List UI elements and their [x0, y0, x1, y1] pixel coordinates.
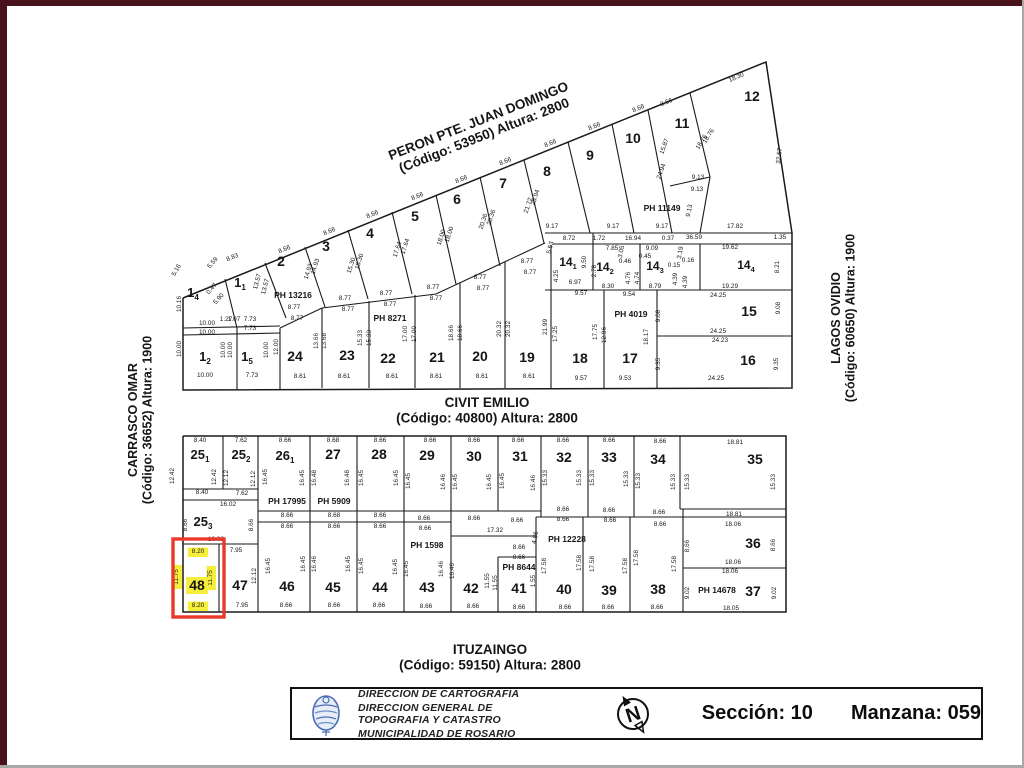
svg-text:19: 19: [519, 349, 535, 365]
dimension-label: 5.59: [206, 256, 220, 270]
dimension-label: 24.94: [656, 162, 668, 180]
dimension-label: 8.77: [291, 315, 304, 322]
ph-parcel-label: PH 12228: [548, 534, 586, 544]
dimension-label: 12.12: [251, 568, 258, 584]
lot-number-label: 18: [572, 350, 588, 366]
svg-text:28: 28: [371, 446, 387, 462]
lot-number-label: 17: [622, 350, 638, 366]
dimension-label: 16.45: [358, 558, 365, 574]
lot-number-label: 141: [559, 255, 577, 271]
svg-text:15.33: 15.33: [635, 473, 642, 489]
svg-text:8.61: 8.61: [386, 373, 399, 380]
lot-number-label: 23: [339, 347, 355, 363]
dimension-label: 32.57: [775, 147, 784, 164]
footer-line-1: DIRECCION DE CARTOGRAFIA: [358, 688, 540, 700]
svg-text:16.02: 16.02: [220, 501, 236, 508]
svg-text:4.25: 4.25: [553, 269, 560, 282]
dimension-label: 16.45: [392, 559, 399, 575]
svg-text:17.00: 17.00: [402, 326, 409, 342]
svg-text:7.85: 7.85: [606, 245, 619, 252]
dimension-label: 12.12: [223, 470, 230, 486]
svg-text:2: 2: [277, 253, 285, 269]
street-civit: CIVIT EMILIO(Código: 40800) Altura: 2800: [396, 395, 578, 426]
dimension-label: 8.66: [374, 512, 387, 519]
dimension-label: 8.66: [182, 518, 189, 531]
svg-text:7.73: 7.73: [244, 316, 257, 323]
svg-text:9.13: 9.13: [691, 186, 704, 193]
dimension-label: 12.42: [169, 468, 176, 484]
svg-text:0.46: 0.46: [619, 258, 632, 265]
svg-text:9.13: 9.13: [685, 203, 695, 217]
svg-text:17.75: 17.75: [592, 324, 599, 340]
ph-parcel-label: PH 17995: [268, 496, 306, 506]
dimension-label: 0.16: [682, 257, 695, 264]
svg-text:15.33: 15.33: [623, 471, 630, 487]
svg-text:11.55: 11.55: [492, 575, 499, 591]
svg-text:16.94: 16.94: [625, 235, 641, 242]
svg-text:4: 4: [366, 225, 374, 241]
svg-text:18.30: 18.30: [728, 71, 746, 84]
dimension-label: 8.77: [430, 295, 443, 302]
dimension-label: 18.06: [725, 521, 741, 528]
svg-text:17.32: 17.32: [487, 527, 503, 534]
section-label: Sección: 10: [702, 702, 813, 725]
svg-text:16.45: 16.45: [262, 469, 269, 485]
dimension-label: 7.85: [606, 245, 619, 252]
dimension-label: 8.66: [279, 437, 292, 444]
svg-text:8.61: 8.61: [338, 373, 351, 380]
ph-parcel-label: PH 14678: [698, 585, 736, 595]
svg-text:6.97: 6.97: [569, 279, 582, 286]
svg-text:20.32: 20.32: [496, 321, 503, 337]
dimension-label: 8.66: [418, 515, 431, 522]
dimension-label: 4.25: [553, 269, 560, 282]
dimension-label: 8.20: [188, 548, 208, 557]
dimension-label: 8.77: [521, 258, 534, 265]
svg-text:20: 20: [472, 348, 488, 364]
dimension-label: 8.66: [631, 103, 646, 114]
svg-text:8.79: 8.79: [649, 283, 662, 290]
lot-number-label: 253: [194, 514, 213, 531]
svg-text:16.45: 16.45: [345, 556, 352, 572]
svg-text:PH 12228: PH 12228: [548, 534, 586, 544]
svg-text:4.86: 4.86: [531, 531, 540, 545]
svg-text:8.66: 8.66: [659, 97, 674, 108]
lot-number-label: 30: [466, 448, 482, 464]
footer-org-lines: DIRECCION DE CARTOGRAFIA DIRECCION GENER…: [358, 688, 540, 740]
dimension-label: 16.45: [358, 470, 365, 486]
svg-text:8.68: 8.68: [328, 512, 341, 519]
svg-text:15.87: 15.87: [659, 137, 671, 155]
svg-text:16.45: 16.45: [486, 474, 493, 490]
dimension-label: 16.46: [438, 561, 445, 577]
dimension-label: 16.48: [311, 470, 318, 486]
svg-text:8.66: 8.66: [281, 523, 294, 530]
dimension-label: 17.32: [487, 527, 503, 534]
svg-text:16.45: 16.45: [392, 559, 399, 575]
dimension-label: 8.77: [288, 304, 301, 311]
svg-text:8.66: 8.66: [279, 437, 292, 444]
svg-text:8.66: 8.66: [557, 516, 570, 523]
svg-text:12.42: 12.42: [211, 469, 218, 485]
svg-text:8.66: 8.66: [587, 121, 602, 132]
lot-number-label: 11: [234, 275, 246, 292]
dimension-label: 9.54: [623, 291, 636, 298]
svg-text:13.66: 13.66: [313, 333, 320, 349]
svg-text:10.00: 10.00: [227, 342, 234, 358]
svg-text:8.77: 8.77: [291, 315, 304, 322]
dimension-label: 18.66: [457, 325, 464, 341]
dimension-label: 17.82: [727, 223, 743, 230]
svg-text:141: 141: [559, 255, 577, 271]
lot-number-label: 39: [601, 582, 617, 598]
dimension-label: 8.21: [774, 260, 781, 273]
svg-text:15.33: 15.33: [357, 330, 364, 346]
dimension-label: 7.73: [246, 372, 259, 379]
svg-text:16.48: 16.48: [344, 470, 351, 486]
svg-text:11.55: 11.55: [484, 573, 491, 589]
svg-text:18.66: 18.66: [457, 325, 464, 341]
dimension-label: 11.75: [207, 566, 216, 590]
svg-text:8.66: 8.66: [248, 518, 255, 531]
svg-text:32.57: 32.57: [775, 147, 784, 164]
svg-text:8.68: 8.68: [327, 437, 340, 444]
dimension-label: 15.33: [770, 474, 777, 490]
svg-text:PH 17995: PH 17995: [268, 496, 306, 506]
svg-text:CIVIT EMILIO(Código: 40800) Al: CIVIT EMILIO(Código: 40800) Altura: 2800: [396, 395, 578, 426]
svg-text:14.93: 14.93: [310, 257, 322, 275]
svg-text:34: 34: [650, 451, 666, 467]
svg-text:27: 27: [325, 446, 341, 462]
svg-text:1.55: 1.55: [530, 574, 537, 587]
svg-text:4.39: 4.39: [682, 275, 689, 288]
svg-text:17.64: 17.64: [400, 237, 412, 255]
dimension-label: 15.33: [589, 470, 596, 486]
dimension-label: 1.55: [530, 574, 537, 587]
svg-text:8.66: 8.66: [513, 554, 526, 561]
svg-text:8.66: 8.66: [281, 512, 294, 519]
dimension-label: 18.81: [726, 511, 742, 518]
lot-number-label: 31: [512, 448, 528, 464]
lot-number-label: 44: [372, 579, 388, 595]
dimension-label: 9.09: [646, 245, 659, 252]
dimension-label: 8.61: [294, 373, 307, 380]
svg-text:9.57: 9.57: [575, 290, 588, 297]
dimension-label: 8.66: [511, 517, 524, 524]
parcel-boundary-line: [183, 326, 280, 328]
svg-text:8.66: 8.66: [602, 604, 615, 611]
svg-text:8.66: 8.66: [280, 602, 293, 609]
dimension-label: 16.45: [299, 470, 306, 486]
svg-text:5.90: 5.90: [212, 292, 226, 306]
dimension-label: 8.66: [603, 437, 616, 444]
svg-text:8.61: 8.61: [294, 373, 307, 380]
svg-text:8.66: 8.66: [374, 512, 387, 519]
dimension-label: 8.72: [563, 235, 576, 242]
svg-text:9: 9: [586, 147, 594, 163]
dimension-label: 7.95: [230, 547, 243, 554]
dimension-label: 16.45: [262, 469, 269, 485]
footer-line-3: MUNICIPALIDAD DE ROSARIO: [358, 728, 540, 740]
svg-text:8.77: 8.77: [384, 301, 397, 308]
dimension-label: 9.17: [656, 223, 669, 230]
lot-number-label: 16: [740, 352, 756, 368]
svg-text:16.46: 16.46: [438, 561, 445, 577]
dimension-label: 5.90: [212, 292, 226, 306]
svg-text:17.58: 17.58: [576, 555, 583, 571]
dimension-label: 9.13: [691, 186, 704, 193]
dimension-label: 10.00: [199, 329, 215, 336]
svg-text:9.54: 9.54: [623, 291, 636, 298]
lot-number-label: 27: [325, 446, 341, 462]
dimension-label: 16.02: [220, 501, 236, 508]
svg-text:16.45: 16.45: [405, 473, 412, 489]
parcel-boundary-line: [183, 333, 280, 335]
svg-text:8.66: 8.66: [654, 438, 667, 445]
svg-text:9.35: 9.35: [773, 357, 780, 370]
dimension-label: 8.79: [649, 283, 662, 290]
svg-text:9.53: 9.53: [619, 375, 632, 382]
dimension-label: 8.66: [602, 604, 615, 611]
svg-text:16.46: 16.46: [440, 474, 447, 490]
dimension-label: 8.77: [474, 274, 487, 281]
dimension-label: 8.66: [513, 554, 526, 561]
svg-text:8.66: 8.66: [511, 517, 524, 524]
dimension-label: 15.33: [623, 471, 630, 487]
dimension-label: 8.40: [196, 489, 209, 496]
lot-number-label: 21: [429, 349, 445, 365]
dimension-label: 15.33: [684, 474, 691, 490]
dimension-label: 16.46: [440, 474, 447, 490]
dimension-label: 17.64: [400, 237, 412, 255]
svg-text:5.16: 5.16: [171, 263, 184, 278]
dimension-label: 9.57: [575, 375, 588, 382]
dimension-label: 17.58: [589, 556, 596, 572]
svg-text:12.00: 12.00: [273, 339, 280, 355]
lot-number-label: 2: [277, 253, 285, 269]
svg-text:13.68: 13.68: [321, 333, 328, 349]
svg-text:1.07: 1.07: [228, 316, 241, 323]
dimension-label: 16.45: [265, 558, 272, 574]
svg-text:15.33: 15.33: [576, 470, 583, 486]
dimension-label: 9.08: [655, 309, 662, 322]
dimension-label: 16.45: [403, 561, 410, 577]
svg-text:10.00: 10.00: [199, 329, 215, 336]
svg-text:8.66: 8.66: [328, 602, 341, 609]
svg-text:8.66: 8.66: [631, 103, 646, 114]
svg-text:17.25: 17.25: [552, 326, 559, 342]
lot-number-label: 10: [625, 130, 641, 146]
dimension-label: 12.96: [601, 327, 608, 343]
svg-text:8.66: 8.66: [424, 437, 437, 444]
svg-text:18.06: 18.06: [725, 521, 741, 528]
svg-text:16.45: 16.45: [358, 558, 365, 574]
dimension-label: 12.00: [273, 339, 280, 355]
svg-text:3.05: 3.05: [617, 245, 626, 259]
dimension-label: 8.66: [603, 507, 616, 514]
dimension-label: 10.00: [220, 342, 227, 358]
svg-text:40: 40: [556, 581, 572, 597]
dimension-label: 8.66: [419, 525, 432, 532]
dimension-label: 13.66: [313, 333, 320, 349]
svg-text:42: 42: [463, 580, 479, 596]
dimension-label: 15.33: [670, 474, 677, 490]
svg-text:142: 142: [596, 260, 614, 276]
dimension-label: 8.83: [225, 252, 240, 263]
svg-text:7.95: 7.95: [236, 602, 249, 609]
svg-text:9.02: 9.02: [684, 586, 691, 599]
svg-text:1.72: 1.72: [593, 235, 606, 242]
dimension-label: 18.05: [723, 605, 739, 612]
ph-parcel-label: PH 4019: [614, 309, 647, 319]
svg-text:8.66: 8.66: [420, 603, 433, 610]
svg-text:18: 18: [572, 350, 588, 366]
dimension-label: 18.06: [722, 568, 738, 575]
lot-number-label: 35: [747, 451, 763, 467]
svg-text:8.61: 8.61: [476, 373, 489, 380]
svg-text:8.66: 8.66: [513, 544, 526, 551]
lot-number-label: 5: [411, 208, 419, 224]
svg-text:8.61: 8.61: [523, 373, 536, 380]
dimension-label: 7.73: [244, 316, 257, 323]
svg-text:9.08: 9.08: [775, 301, 782, 314]
dimension-label: 4.39: [672, 272, 679, 285]
cadastral-map-page: 5.1610.165.590.475.901.271.078.838.668.6…: [0, 0, 1024, 768]
svg-text:8.66: 8.66: [328, 523, 341, 530]
dimension-label: 11.55: [484, 573, 491, 589]
svg-text:8.66: 8.66: [322, 226, 337, 237]
dimension-label: 15.33: [576, 470, 583, 486]
dimension-label: 8.61: [523, 373, 536, 380]
svg-text:8.72: 8.72: [563, 235, 576, 242]
dimension-label: 8.68: [327, 437, 340, 444]
dimension-label: 16.46: [530, 475, 537, 491]
municipal-emblem-logo: [308, 691, 344, 737]
dimension-label: 21.99: [542, 319, 549, 335]
svg-text:7.73: 7.73: [244, 325, 257, 332]
svg-text:13.57: 13.57: [260, 278, 271, 296]
dimension-label: 8.68: [328, 512, 341, 519]
dimension-label: 8.66: [424, 437, 437, 444]
dimension-label: 17.58: [622, 558, 629, 574]
north-arrow-icon: N: [610, 691, 656, 737]
dimension-label: 19.29: [722, 283, 738, 290]
lot-number-label: 12: [199, 349, 211, 366]
svg-text:12.12: 12.12: [251, 568, 258, 584]
svg-text:8.20: 8.20: [192, 602, 205, 609]
svg-text:36: 36: [745, 535, 761, 551]
svg-text:19.29: 19.29: [722, 283, 738, 290]
ph-parcel-label: PH 8271: [373, 313, 406, 323]
dimension-label: 0.46: [619, 258, 632, 265]
dimension-label: 8.66: [280, 602, 293, 609]
dimension-label: 8.30: [602, 283, 615, 290]
svg-text:16.45: 16.45: [300, 556, 307, 572]
dimension-label: 8.61: [430, 373, 443, 380]
svg-text:0.37: 0.37: [662, 235, 675, 242]
dimension-label: 13.68: [321, 333, 328, 349]
dimension-label: 20.32: [496, 321, 503, 337]
svg-text:17.58: 17.58: [633, 550, 640, 566]
dimension-label: 12.42: [211, 469, 218, 485]
svg-text:PH 13216: PH 13216: [274, 290, 312, 300]
lot-number-label: 32: [556, 449, 572, 465]
lot-number-label: 142: [596, 260, 614, 276]
svg-text:47: 47: [232, 577, 248, 593]
dimension-label: 18.30: [728, 71, 746, 84]
dimension-label: 1.72: [593, 235, 606, 242]
svg-text:8.66: 8.66: [770, 538, 777, 551]
svg-text:251: 251: [191, 447, 210, 464]
dimension-label: 8.40: [194, 437, 207, 444]
svg-text:30: 30: [466, 448, 482, 464]
ph-parcel-label: PH 13216: [274, 290, 312, 300]
svg-text:8.77: 8.77: [430, 295, 443, 302]
dimension-label: 17.58: [671, 556, 678, 572]
lot-number-label: 45: [325, 579, 341, 595]
svg-text:16.46: 16.46: [311, 556, 318, 572]
svg-text:8.77: 8.77: [380, 290, 393, 297]
svg-text:29: 29: [419, 447, 435, 463]
dimension-label: 17.25: [552, 326, 559, 342]
svg-text:8.77: 8.77: [474, 274, 487, 281]
svg-text:24.94: 24.94: [656, 162, 668, 180]
dimension-label: 0.15: [668, 262, 681, 269]
svg-text:8.83: 8.83: [225, 252, 240, 263]
svg-text:35: 35: [747, 451, 763, 467]
dimension-label: 9.50: [581, 255, 588, 268]
dimension-label: 8.66: [557, 516, 570, 523]
dimension-label: 8.66: [684, 539, 691, 552]
svg-text:18.00: 18.00: [444, 225, 456, 243]
dimension-label: 20.32: [505, 321, 512, 337]
dimension-label: 15.33: [635, 473, 642, 489]
svg-text:8.66: 8.66: [418, 515, 431, 522]
lot-number-label: 261: [276, 448, 295, 465]
dimension-label: 16.45: [486, 474, 493, 490]
dimension-label: 8.66: [559, 604, 572, 611]
svg-text:16.46: 16.46: [530, 475, 537, 491]
svg-text:8.77: 8.77: [521, 258, 534, 265]
svg-text:7.62: 7.62: [235, 437, 248, 444]
svg-text:18.05: 18.05: [723, 605, 739, 612]
dimension-label: 8.66: [374, 523, 387, 530]
svg-text:9.17: 9.17: [656, 223, 669, 230]
lot-number-label: 8: [543, 163, 551, 179]
svg-text:0.16: 0.16: [682, 257, 695, 264]
svg-text:PH 11149: PH 11149: [644, 203, 681, 213]
dimension-label: 8.66: [654, 438, 667, 445]
lot-number-label: 4: [366, 225, 374, 241]
svg-text:16.45: 16.45: [452, 474, 459, 490]
svg-text:43: 43: [419, 579, 435, 595]
svg-text:18.17: 18.17: [643, 329, 650, 345]
svg-text:8.66: 8.66: [651, 604, 664, 611]
svg-text:7.95: 7.95: [230, 547, 243, 554]
svg-text:48: 48: [189, 577, 205, 593]
dimension-label: 17.00: [411, 326, 418, 342]
svg-text:8.66: 8.66: [467, 603, 480, 610]
svg-text:9.57: 9.57: [575, 375, 588, 382]
dimension-label: 8.66: [557, 506, 570, 513]
lot-number-label: 48: [186, 577, 208, 594]
dimension-label: 10.16: [176, 296, 183, 312]
dimension-label: 16.48: [344, 470, 351, 486]
svg-text:9.17: 9.17: [546, 223, 559, 230]
svg-text:16.46: 16.46: [449, 563, 456, 579]
svg-text:38: 38: [650, 581, 666, 597]
svg-text:PH 14678: PH 14678: [698, 585, 736, 595]
